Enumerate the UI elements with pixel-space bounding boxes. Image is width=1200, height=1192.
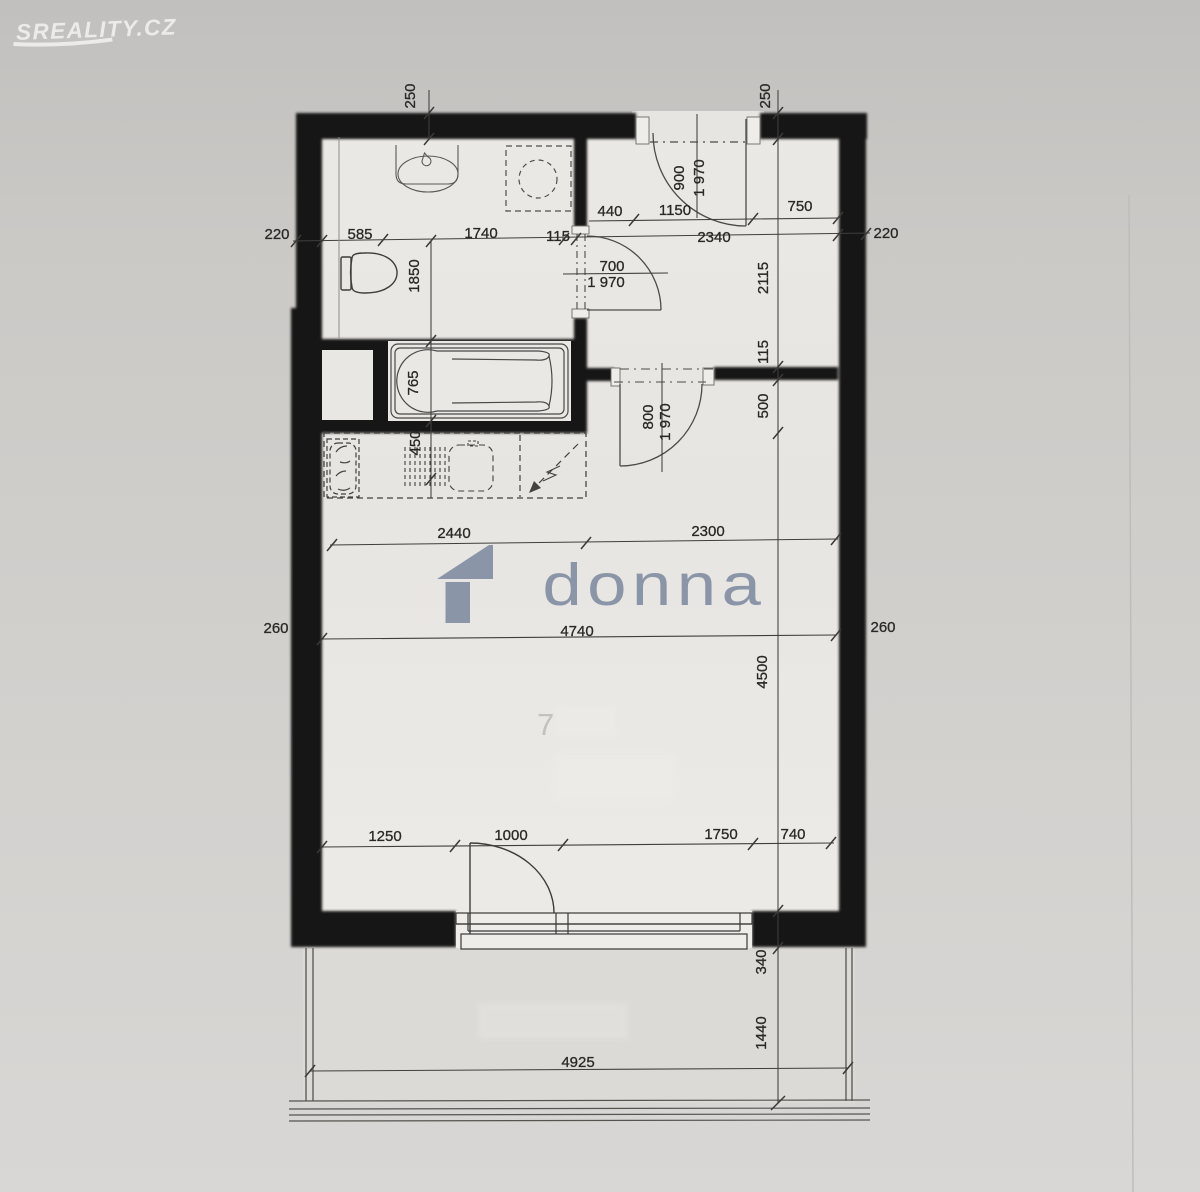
svg-text:4500: 4500: [754, 655, 771, 688]
svg-text:2115: 2115: [755, 262, 772, 294]
svg-text:700: 700: [599, 258, 624, 275]
svg-text:220: 220: [264, 226, 289, 243]
svg-text:1740: 1740: [464, 225, 497, 242]
svg-text:340: 340: [753, 949, 770, 974]
svg-text:115: 115: [755, 340, 772, 364]
svg-text:1 970: 1 970: [587, 274, 625, 291]
svg-text:260: 260: [263, 620, 288, 637]
svg-text:1 970: 1 970: [657, 403, 674, 441]
svg-text:765: 765: [405, 370, 422, 395]
svg-text:1440: 1440: [753, 1016, 770, 1049]
svg-text:1150: 1150: [659, 202, 691, 219]
svg-text:800: 800: [640, 404, 657, 429]
svg-text:220: 220: [873, 225, 898, 242]
svg-text:7: 7: [537, 707, 554, 742]
svg-text:4925: 4925: [561, 1054, 594, 1071]
svg-text:900: 900: [671, 165, 688, 190]
svg-text:2340: 2340: [697, 229, 730, 246]
svg-text:440: 440: [597, 203, 622, 220]
svg-text:2300: 2300: [691, 523, 724, 540]
svg-text:2440: 2440: [437, 525, 470, 542]
svg-text:250: 250: [757, 83, 774, 108]
svg-text:260: 260: [870, 619, 895, 636]
svg-text:115: 115: [546, 228, 570, 245]
svg-text:450: 450: [407, 430, 424, 455]
svg-text:4740: 4740: [560, 623, 593, 640]
svg-text:1750: 1750: [704, 826, 737, 843]
svg-text:1850: 1850: [406, 259, 423, 292]
svg-text:250: 250: [402, 83, 419, 108]
svg-text:1000: 1000: [494, 827, 527, 844]
svg-text:740: 740: [780, 826, 805, 843]
svg-text:1 970: 1 970: [691, 159, 708, 197]
svg-text:750: 750: [787, 198, 812, 215]
svg-text:donna: donna: [542, 552, 766, 618]
svg-text:500: 500: [755, 393, 772, 418]
svg-text:585: 585: [347, 226, 372, 243]
svg-text:1250: 1250: [368, 828, 401, 845]
